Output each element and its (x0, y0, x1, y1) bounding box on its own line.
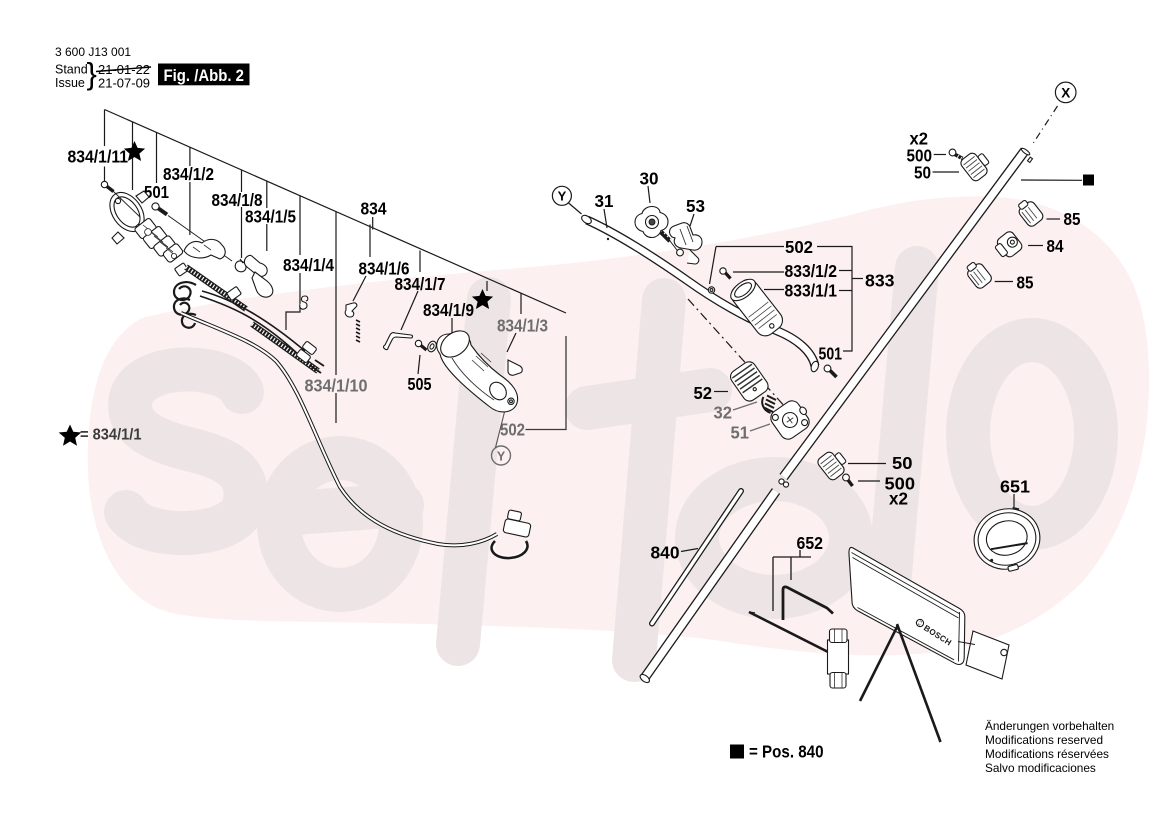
svg-text:Y: Y (558, 189, 567, 204)
svg-text:834/1/11: 834/1/11 (68, 147, 129, 167)
svg-text:32: 32 (714, 402, 733, 422)
svg-text:501: 501 (144, 182, 169, 202)
svg-text:505: 505 (408, 374, 432, 394)
svg-text:85: 85 (1064, 209, 1081, 229)
svg-text:834: 834 (361, 198, 387, 218)
svg-text:834/1/3: 834/1/3 (497, 316, 548, 336)
svg-text:Salvo modificaciones: Salvo modificaciones (985, 761, 1096, 775)
svg-text:}: } (87, 56, 97, 91)
svg-text:833/1/2: 833/1/2 (785, 261, 838, 281)
svg-text:= Pos. 840: = Pos. 840 (749, 742, 824, 762)
svg-text:Fig. /Abb. 2: Fig. /Abb. 2 (164, 66, 245, 85)
svg-text:= 834/1/1: = 834/1/1 (80, 427, 142, 444)
svg-text:651: 651 (1000, 477, 1030, 497)
svg-text:x2: x2 (889, 489, 908, 509)
svg-text:51: 51 (731, 423, 750, 443)
svg-text:52: 52 (694, 383, 713, 403)
svg-text:85: 85 (1017, 273, 1034, 293)
svg-text:50: 50 (892, 453, 913, 473)
svg-text:Y: Y (497, 449, 506, 463)
svg-text:834/1/7: 834/1/7 (395, 274, 446, 294)
svg-text:833: 833 (865, 271, 895, 291)
svg-text:21-07-09: 21-07-09 (98, 76, 150, 91)
svg-text:834/1/2: 834/1/2 (163, 164, 214, 184)
svg-text:X: X (1061, 85, 1070, 100)
svg-text:30: 30 (640, 169, 659, 189)
svg-text:501: 501 (819, 344, 843, 364)
svg-text:502: 502 (785, 237, 813, 257)
svg-text:50: 50 (914, 163, 931, 183)
svg-text:834/1/4: 834/1/4 (283, 255, 334, 275)
svg-text:Modifications reserved: Modifications reserved (985, 733, 1103, 747)
svg-text:840: 840 (651, 543, 680, 563)
svg-text:834/1/9: 834/1/9 (423, 300, 474, 320)
svg-text:502: 502 (500, 420, 525, 440)
svg-text:Issue: Issue (55, 76, 85, 90)
svg-text:53: 53 (686, 196, 705, 216)
svg-text:Modifications réservées: Modifications réservées (985, 747, 1109, 761)
svg-text:84: 84 (1047, 236, 1064, 256)
svg-text:833/1/1: 833/1/1 (785, 281, 838, 301)
svg-text:834/1/5: 834/1/5 (245, 206, 296, 226)
svg-text:Änderungen vorbehalten: Änderungen vorbehalten (985, 719, 1114, 733)
svg-text:31: 31 (595, 191, 614, 211)
svg-text:834/1/10: 834/1/10 (305, 375, 368, 395)
svg-text:Stand: Stand (55, 63, 88, 77)
